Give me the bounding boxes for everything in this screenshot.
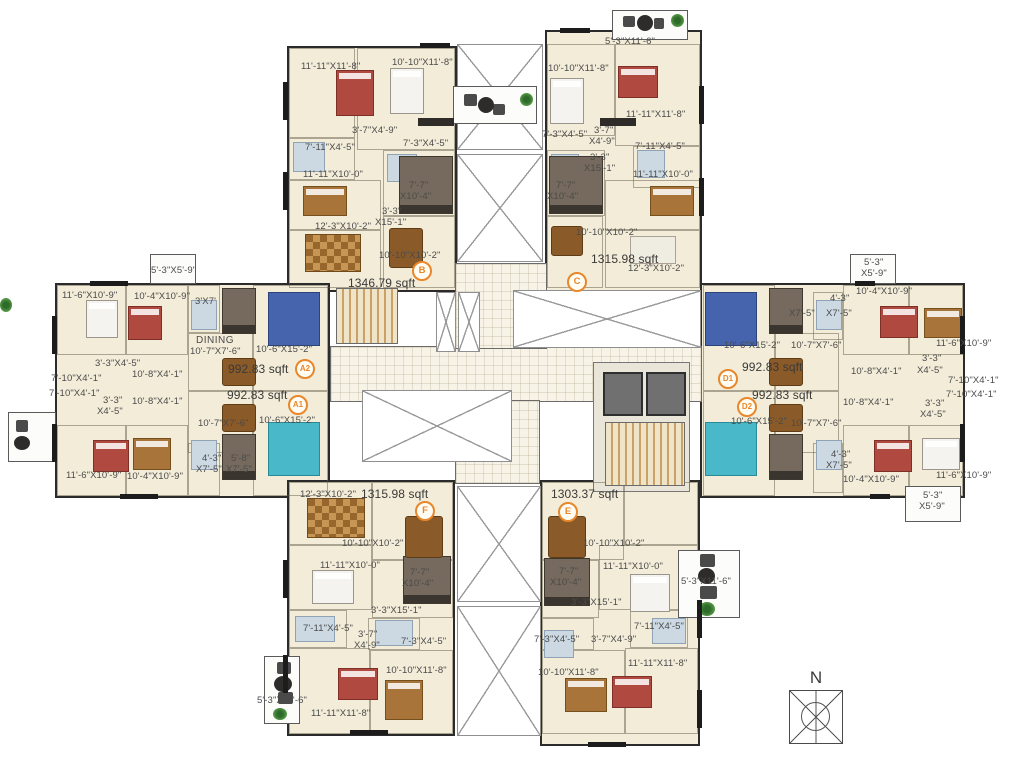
- bed: [385, 680, 423, 720]
- room-label: 10'-4"X10'-9": [134, 292, 190, 302]
- unit-badge-D2: D2: [737, 397, 757, 417]
- bed: [924, 308, 962, 338]
- plant-icon: [520, 93, 533, 106]
- room-label: 7'-7": [556, 181, 575, 191]
- plant-icon: [273, 708, 287, 720]
- room-label: X10'-4": [400, 192, 431, 202]
- bed: [630, 574, 670, 612]
- room-label: 10'-4"X10'-9": [856, 287, 912, 297]
- compass-circle: [801, 702, 830, 731]
- room-label: 7'-7": [410, 568, 429, 578]
- room-label: 11'-11"X11'-8": [626, 110, 685, 120]
- room-label: 3'-3"X15'-1": [571, 598, 622, 608]
- room-label: 7'-3"X4'-5": [401, 637, 446, 647]
- balcony: [8, 412, 56, 462]
- unit-badge-A1: A1: [288, 395, 308, 415]
- room-label: X15'-1": [375, 218, 406, 228]
- chair: [700, 554, 715, 567]
- sofa: [307, 498, 365, 538]
- room-label: X4'-9": [354, 641, 380, 651]
- window-bar: [283, 82, 288, 120]
- room-label: 5'-8": [231, 454, 250, 464]
- window-bar: [350, 730, 388, 735]
- room-label: X5'-9": [861, 269, 887, 279]
- sofa: [305, 234, 361, 272]
- window-bar: [699, 178, 704, 216]
- bed: [922, 438, 960, 470]
- chair: [16, 420, 28, 432]
- plant-icon: [0, 298, 12, 312]
- room-label: X7'-5": [826, 461, 852, 471]
- bed: [390, 68, 424, 114]
- room-label: 10'-6"X15'-2": [256, 345, 312, 355]
- room-label: 7'-3"X4'-5": [403, 139, 448, 149]
- room-label: 10'-10"X11'-8": [392, 58, 453, 68]
- room-label: 3'-3": [590, 153, 609, 163]
- room-outline: [624, 482, 698, 545]
- room-label: X4'-5": [97, 407, 123, 417]
- dining-table: [548, 516, 586, 558]
- round-table: [478, 97, 494, 113]
- room-label: X7'-5": [226, 465, 252, 475]
- room-label: X10'-4": [547, 192, 578, 202]
- compass-north-label: N: [797, 668, 835, 688]
- bed: [86, 300, 118, 338]
- bed: [133, 438, 171, 470]
- window-bar: [699, 86, 704, 124]
- sofa: [268, 422, 320, 476]
- room-label: 11'-11"X10'-0": [303, 170, 363, 180]
- sofa: [705, 422, 757, 476]
- room-label: 3'-3": [103, 396, 122, 406]
- room-label: 11'-6"X10'-9": [936, 471, 991, 481]
- room-label: 10'-4"X10'-9": [843, 475, 899, 485]
- room-label: X7'-5": [196, 465, 222, 475]
- window-bar: [420, 43, 450, 48]
- floor-plan: 11'-11"X11'-8" 10'-10"X11'-8" 3'-7"X4'-9…: [0, 0, 1020, 768]
- window-bar: [283, 655, 288, 693]
- room-label: 3'X7': [195, 297, 216, 307]
- room-label: 10'-8"X4'-1": [132, 370, 183, 380]
- window-bar: [52, 316, 57, 354]
- staircase: [336, 288, 398, 344]
- bed: [93, 440, 129, 472]
- round-table: [637, 15, 653, 31]
- window-bar: [283, 560, 288, 598]
- bed: [874, 440, 912, 472]
- bed: [612, 676, 652, 708]
- window-bar: [697, 600, 702, 638]
- room-label: 7'-10"X4'-1": [51, 374, 102, 384]
- chair: [464, 94, 477, 106]
- room-label: 5'-3"X5'-9": [151, 266, 196, 276]
- window-bar: [960, 424, 965, 462]
- room-label: 5'-3": [923, 491, 942, 501]
- unit-area: 1303.37 sqft: [551, 488, 618, 501]
- unit-area: 992.83 sqft: [227, 389, 287, 402]
- kitchen-counter: [769, 434, 803, 480]
- room-label: 10'-10"X10'-2": [342, 539, 403, 549]
- unit-badge-F: F: [415, 501, 435, 521]
- open-shaft: [457, 606, 541, 736]
- room-label: X10'-4": [402, 579, 433, 589]
- room-label: 10'-4"X10'-9": [127, 472, 183, 482]
- elevator: [603, 372, 643, 416]
- room-label: 10'-6"X15'-2": [259, 416, 315, 426]
- window-bar: [283, 172, 288, 210]
- room-label: 11'-11"X11'-8": [311, 709, 370, 719]
- open-shaft: [458, 292, 480, 352]
- unit-area: 1346.79 sqft: [348, 277, 415, 290]
- room-label: X4'-9": [589, 137, 615, 147]
- room-label: 5'-3"X11'-6": [681, 577, 731, 587]
- room-label: 10'-8"X4'-1": [851, 367, 902, 377]
- unit-badge-B: B: [412, 261, 432, 281]
- room-label: 3'-3": [382, 207, 401, 217]
- window-bar: [52, 424, 57, 462]
- room-label: X5'-9": [919, 502, 945, 512]
- room-label: 11'-11"X10'-0": [603, 562, 663, 572]
- room-label: 5'-3": [864, 258, 883, 268]
- room-label: 12'-3"X10'-2": [628, 264, 684, 274]
- room-label: 10'-10"X11'-8": [538, 668, 599, 678]
- room-label: 3'-7": [358, 630, 377, 640]
- bed: [650, 186, 694, 216]
- bed: [565, 678, 607, 712]
- bed: [128, 306, 162, 340]
- bed: [312, 570, 354, 604]
- room-label: 4'-3": [830, 294, 849, 304]
- window-bar: [120, 494, 158, 499]
- room-label: 3'-7": [594, 126, 613, 136]
- room-label: 10'-7"X7'-6": [198, 419, 249, 429]
- room-label: 7'-10"X4'-1": [946, 390, 997, 400]
- chair: [493, 104, 505, 115]
- window-bar: [870, 494, 890, 499]
- plant-icon: [671, 14, 684, 27]
- room-label: X4'-5": [917, 366, 943, 376]
- window-bar: [588, 742, 626, 747]
- room-label: 10'-10"X11'-8": [548, 64, 609, 74]
- room-label: 7'-11"X4'-5": [634, 622, 684, 632]
- room-label: 11'-11"X11'-8": [628, 659, 687, 669]
- room-label: 10'-8"X4'-1": [132, 397, 183, 407]
- unit-area: 992.83 sqft: [228, 363, 288, 376]
- room-label: 3'-7"X4'-9": [352, 126, 397, 136]
- unit-badge-C: C: [567, 272, 587, 292]
- chair: [700, 586, 717, 599]
- room-label: 11'-6"X10'-9": [62, 291, 117, 301]
- bed: [880, 306, 918, 338]
- room-label: 10'-10"X10'-2": [576, 228, 637, 238]
- room-label: 12'-3"X10'-2": [315, 222, 371, 232]
- room-label: 10'-8"X4'-1": [843, 398, 894, 408]
- room-label: 11'-6"X10'-9": [66, 471, 121, 481]
- bed: [336, 70, 374, 116]
- open-shaft: [436, 292, 456, 352]
- room-label: X15'-1": [584, 164, 615, 174]
- room-label: 7'-3"X4'-5": [534, 635, 579, 645]
- window-bar: [697, 690, 702, 728]
- room-label: 11'-11"X10'-0": [633, 170, 693, 180]
- room-label: 7'-7": [409, 181, 428, 191]
- unit-badge-D1: D1: [718, 369, 738, 389]
- room-label: 7'-7": [559, 567, 578, 577]
- room-label: X10'-4": [550, 578, 581, 588]
- dining-table: [405, 516, 443, 558]
- room-label: X4'-5": [920, 410, 946, 420]
- bed: [303, 186, 347, 216]
- room-label: 7'-11"X4'-5": [303, 624, 353, 634]
- room-label: 11'-6"X10'-9": [936, 339, 991, 349]
- room-label: 3'-3"X4'-5": [95, 359, 140, 369]
- room-label: X7'-5": [789, 309, 815, 319]
- room-label: 10'-10"X10'-2": [583, 539, 644, 549]
- staircase: [605, 422, 685, 486]
- bed: [338, 668, 378, 700]
- room-label: 10'-7"X7'-6": [791, 341, 842, 351]
- room-label: 3'-3": [922, 354, 941, 364]
- room-label: 7'-10"X4'-1": [948, 376, 999, 386]
- room-label: 4'-3": [202, 454, 221, 464]
- room-label: DINING: [196, 336, 234, 347]
- room-label: 7'-11"X4'-5": [635, 142, 685, 152]
- room-label: 10'-6"X15'-2": [731, 417, 787, 427]
- sofa: [268, 292, 320, 346]
- open-shaft: [457, 486, 541, 602]
- room-label: 10'-7"X7'-6": [791, 419, 842, 429]
- open-shaft: [457, 154, 543, 262]
- unit-badge-E: E: [558, 502, 578, 522]
- unit-badge-A2: A2: [295, 359, 315, 379]
- room-label: X7'-5": [826, 309, 852, 319]
- room-label: 3'-3"X15'-1": [371, 606, 422, 616]
- room-label: 7'-3"X4'-5": [542, 130, 587, 140]
- compass-rose-icon: [789, 690, 843, 744]
- unit-area: 992.83 sqft: [742, 361, 802, 374]
- unit-area: 992.83 sqft: [752, 389, 812, 402]
- open-shaft: [513, 290, 701, 348]
- round-table: [14, 436, 30, 450]
- sofa: [705, 292, 757, 346]
- room-label: 4'-3": [831, 450, 850, 460]
- room-label: 3'-3": [925, 399, 944, 409]
- room-label: 12'-3"X10'-2": [300, 490, 356, 500]
- wardrobe: [418, 118, 454, 126]
- room-label: 11'-11"X11'-8": [301, 62, 360, 72]
- room-label: 7'-10"X4'-1": [49, 389, 100, 399]
- elevator: [646, 372, 686, 416]
- room-label: 10'-7"X7'-6": [190, 347, 241, 357]
- window-bar: [560, 28, 590, 33]
- room-label: 10'-10"X11'-8": [386, 666, 447, 676]
- room-label: 7'-11"X4'-5": [305, 143, 355, 153]
- room-label: 10'-10"X10'-2": [379, 251, 440, 261]
- room-label: 11'-11"X10'-0": [320, 561, 380, 571]
- room-label: 5'-3"X11'-6": [257, 696, 307, 706]
- unit-area: 1315.98 sqft: [361, 488, 428, 501]
- bed: [618, 66, 658, 98]
- room-label: 5'-3"X11'-6": [605, 37, 655, 47]
- kitchen-counter: [222, 288, 256, 334]
- bed: [550, 78, 584, 124]
- chair: [623, 16, 635, 27]
- room-label: 3'-7"X4'-9": [591, 635, 636, 645]
- open-shaft: [362, 390, 512, 462]
- room-label: 10'-6"X15'-2": [724, 341, 780, 351]
- chair: [654, 18, 664, 29]
- window-bar: [90, 281, 128, 286]
